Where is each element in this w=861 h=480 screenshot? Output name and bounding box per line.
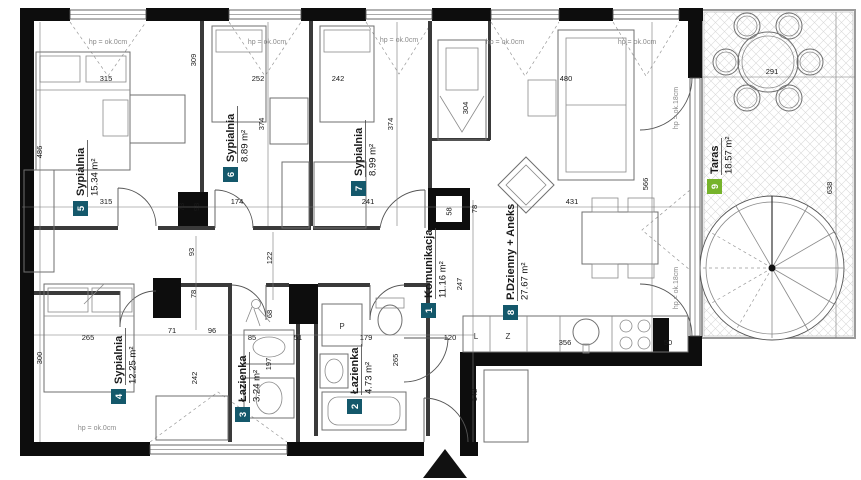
svg-text:Sypialnia: Sypialnia	[353, 127, 365, 176]
bed-room7	[320, 26, 374, 122]
dim-174: 174	[231, 197, 244, 206]
svg-text:Łazienka: Łazienka	[237, 355, 249, 402]
sill-note-6: hp = ok.0cm	[78, 425, 116, 432]
wall-bath3-top-b	[266, 283, 289, 287]
toilet-bath2	[376, 298, 404, 335]
dim-638: 638	[825, 182, 834, 195]
terrace	[700, 10, 855, 340]
dim-68: 68	[265, 310, 274, 318]
wall-bottom-2	[287, 442, 424, 456]
dim-78-corridor: 78	[189, 290, 198, 298]
sill-note-terrace-2: hp = ok.18cm	[673, 267, 680, 309]
dishwasher-label: Z	[506, 332, 511, 341]
dim-431: 431	[566, 197, 579, 206]
wardrobe-hall	[484, 370, 528, 442]
wall-room6-room7	[309, 21, 313, 226]
side-table	[528, 80, 556, 116]
wall-bath2-top-a	[318, 283, 370, 287]
room-label-6: 6 Sypialnia 8.89 m²	[223, 106, 251, 182]
room-label-1: 1 Komunikacja 11.16 m²	[421, 228, 449, 318]
svg-text:Łazienka: Łazienka	[349, 347, 361, 394]
dim-304: 304	[461, 102, 470, 115]
svg-text:4: 4	[114, 393, 125, 399]
svg-text:2: 2	[350, 404, 361, 409]
door-room6	[215, 190, 253, 228]
svg-text:5: 5	[76, 205, 87, 211]
svg-text:8: 8	[506, 310, 517, 315]
wall-kitchen-south	[463, 352, 702, 366]
dim-480: 480	[560, 74, 573, 83]
floor-plan-drawing: 58	[0, 0, 861, 480]
window-top-2	[229, 10, 301, 19]
room-label-2: 2 Łazienka 4.73 m²	[347, 344, 375, 414]
svg-text:27.67 m²: 27.67 m²	[520, 263, 531, 301]
wall-corridor-top-b	[158, 226, 215, 230]
svg-text:18.57 m²: 18.57 m²	[724, 137, 735, 175]
svg-text:Sypialnia: Sypialnia	[225, 113, 237, 162]
sofa	[528, 30, 634, 180]
svg-text:3.24 m²: 3.24 m²	[252, 370, 263, 402]
door-terrace-top	[640, 78, 692, 130]
pillar-mid-3	[289, 284, 318, 324]
window-top-1	[70, 10, 146, 19]
svg-text:4.73 m²: 4.73 m²	[364, 362, 375, 394]
desk-room5	[103, 95, 185, 143]
window-top-3	[366, 10, 432, 19]
dim-96: 96	[208, 326, 216, 335]
room-label-8: 8 P.Dzienny + Aneks 27.67 m²	[503, 204, 531, 320]
wardrobe-room6	[282, 162, 309, 228]
fridge-label: L	[474, 332, 479, 341]
dim-291: 291	[766, 67, 779, 76]
wall-room4-top	[34, 291, 120, 295]
svg-text:9: 9	[710, 184, 721, 189]
svg-text:8.99 m²: 8.99 m²	[368, 144, 379, 176]
dim-50: 50	[664, 338, 672, 347]
sill-annotations: hp = ok.0cm hp = ok.0cm hp = ok.0cm hp =…	[78, 37, 680, 432]
dim-252: 252	[252, 74, 265, 83]
wall-top-2	[146, 8, 229, 21]
dim-374-room6: 374	[257, 118, 266, 131]
svg-text:3: 3	[238, 412, 249, 417]
bathtub	[322, 392, 406, 430]
pillar-mid-2	[153, 278, 181, 318]
pillar-58: 58	[428, 188, 470, 230]
dim-122: 122	[265, 252, 274, 265]
dim-374-room7: 374	[386, 118, 395, 131]
dim-120: 120	[444, 333, 457, 342]
dim-265-bath2: 265	[391, 354, 400, 367]
room-label-7: 7 Sypialnia 8.99 m²	[351, 120, 379, 196]
dim-300: 300	[35, 352, 44, 365]
dim-241: 241	[362, 197, 375, 206]
dim-51: 51	[294, 333, 302, 342]
svg-text:Sypialnia: Sypialnia	[113, 335, 125, 384]
dim-247: 247	[455, 278, 464, 291]
svg-text:15.34 m²: 15.34 m²	[90, 159, 101, 197]
svg-text:Sypialnia: Sypialnia	[75, 147, 87, 196]
wardrobe-room4	[156, 396, 228, 440]
window-top-5	[613, 10, 679, 19]
dim-142: 142	[470, 389, 479, 402]
kitchen-sink	[573, 319, 599, 353]
washing-machine: P	[322, 304, 362, 346]
svg-text:6: 6	[226, 172, 237, 177]
svg-text:1: 1	[424, 307, 435, 313]
dim-315-top: 315	[100, 74, 113, 83]
ventilation-shaft	[438, 40, 486, 140]
wall-corridor-top-a	[34, 226, 118, 230]
sill-note-terrace-1: hp = ok.18cm	[673, 87, 680, 129]
dim-566: 566	[641, 178, 650, 191]
dim-242-room4: 242	[190, 372, 199, 385]
wall-left	[20, 8, 34, 456]
dim-85: 85	[248, 333, 256, 342]
wall-top-4	[432, 8, 491, 21]
svg-text:7: 7	[354, 186, 365, 191]
doors	[118, 78, 692, 442]
svg-text:8.89 m²: 8.89 m²	[240, 130, 251, 162]
svg-text:Taras: Taras	[709, 145, 721, 174]
sill-note-1: hp = ok.0cm	[89, 39, 127, 46]
window-bottom	[150, 445, 287, 454]
svg-text:P.Dzienny + Aneks: P.Dzienny + Aneks	[505, 204, 517, 300]
windows	[70, 10, 700, 454]
washer-label: P	[339, 322, 344, 331]
wall-top-3	[301, 8, 366, 21]
dim-242-top: 242	[332, 74, 345, 83]
room-label-5: 5 Sypialnia 15.34 m²	[73, 140, 101, 216]
wall-top-5	[559, 8, 613, 21]
dim-486: 486	[35, 146, 44, 159]
door-room7	[380, 190, 425, 228]
washbasin-bath2	[320, 354, 348, 388]
wall-room4-bath3	[228, 285, 232, 442]
dining-table	[582, 198, 658, 278]
desk-room6	[270, 98, 308, 144]
dim-179: 179	[360, 333, 373, 342]
sill-note-4: hp = ok.0cm	[486, 39, 524, 46]
spiral-stairs	[700, 196, 844, 340]
svg-text:Komunikacja: Komunikacja	[423, 229, 435, 298]
dim-356: 356	[559, 338, 572, 347]
dim-71: 71	[168, 326, 176, 335]
floor-plan: 58	[0, 0, 861, 480]
dim-58: 58	[445, 207, 454, 215]
dim-197: 197	[264, 358, 273, 371]
dim-315-mid: 315	[100, 197, 113, 206]
wall-bottom-1	[20, 442, 150, 456]
dim-265-room4: 265	[82, 333, 95, 342]
dim-73: 73	[177, 203, 186, 211]
wall-bath3-top-a	[181, 283, 232, 287]
kitchen-hob	[620, 320, 650, 349]
dim-98: 98	[192, 203, 201, 211]
sill-note-5: hp = ok.0cm	[618, 39, 656, 46]
wall-right-top	[688, 8, 702, 78]
window-top-4	[491, 10, 559, 19]
wall-room7-entry	[428, 21, 432, 188]
door-room4	[120, 291, 156, 327]
dim-78-right: 78	[470, 205, 479, 213]
room-label-3: 3 Łazienka 3.24 m²	[235, 352, 263, 422]
svg-text:12.25 m²: 12.25 m²	[128, 347, 139, 385]
dim-309: 309	[189, 54, 198, 67]
dim-93: 93	[187, 248, 196, 256]
sill-note-2: hp = ok.0cm	[248, 39, 286, 46]
door-bath2	[370, 285, 404, 320]
sill-note-3: hp = ok.0cm	[380, 37, 418, 44]
window-opening-dashes	[70, 22, 690, 442]
svg-text:11.16 m²: 11.16 m²	[438, 261, 449, 298]
